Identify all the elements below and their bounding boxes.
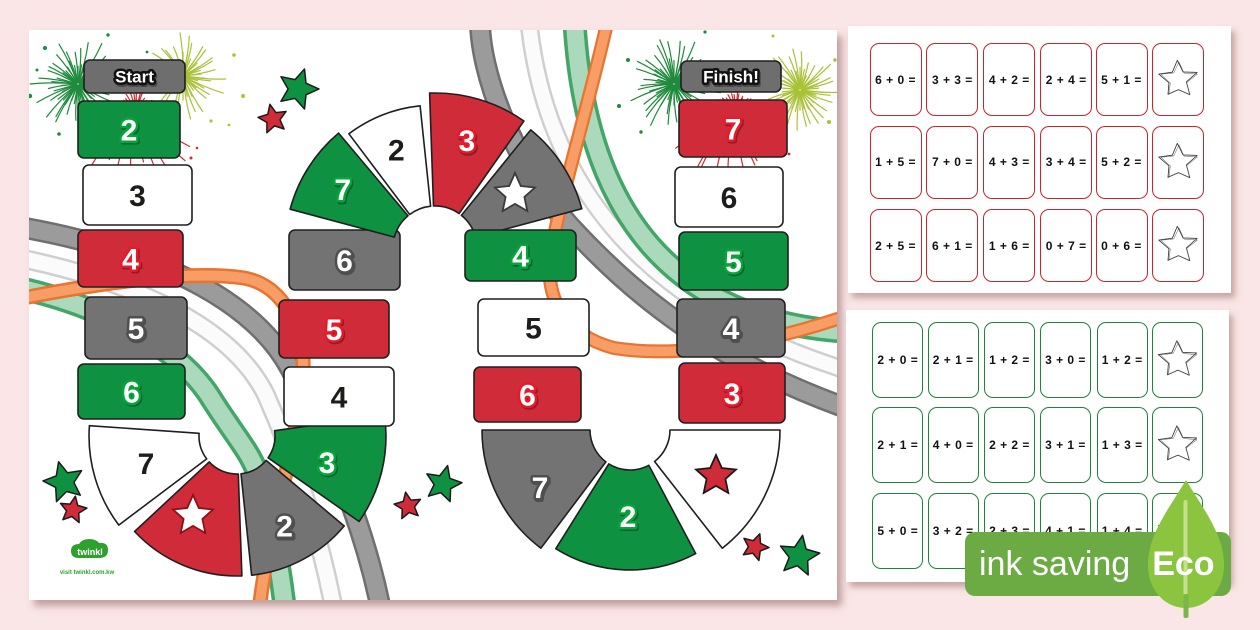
svg-text:3: 3 <box>129 180 146 213</box>
svg-text:6: 6 <box>721 182 738 215</box>
svg-text:6: 6 <box>519 379 536 412</box>
svg-text:twinkl: twinkl <box>77 547 103 557</box>
svg-text:5: 5 <box>326 314 343 347</box>
svg-text:6: 6 <box>336 245 353 278</box>
svg-text:7: 7 <box>532 472 549 505</box>
svg-text:6: 6 <box>123 376 140 409</box>
svg-text:5: 5 <box>725 246 742 279</box>
svg-text:4: 4 <box>122 243 139 276</box>
svg-text:Finish!: Finish! <box>703 68 759 87</box>
svg-text:3: 3 <box>319 447 336 480</box>
svg-text:7: 7 <box>138 448 155 481</box>
svg-text:7: 7 <box>334 174 351 207</box>
svg-text:3: 3 <box>724 378 741 411</box>
svg-text:7: 7 <box>725 113 742 146</box>
svg-text:5: 5 <box>128 313 145 346</box>
svg-text:5: 5 <box>525 312 542 345</box>
svg-text:4: 4 <box>723 313 740 346</box>
svg-text:visit twinkl.com.kw: visit twinkl.com.kw <box>60 570 115 576</box>
svg-text:3: 3 <box>459 125 476 158</box>
svg-text:2: 2 <box>388 135 405 168</box>
svg-text:4: 4 <box>512 240 529 273</box>
svg-text:2: 2 <box>121 114 138 147</box>
svg-text:Start: Start <box>115 68 154 87</box>
svg-text:2: 2 <box>620 501 637 534</box>
svg-text:4: 4 <box>331 381 348 414</box>
svg-text:2: 2 <box>276 510 293 543</box>
